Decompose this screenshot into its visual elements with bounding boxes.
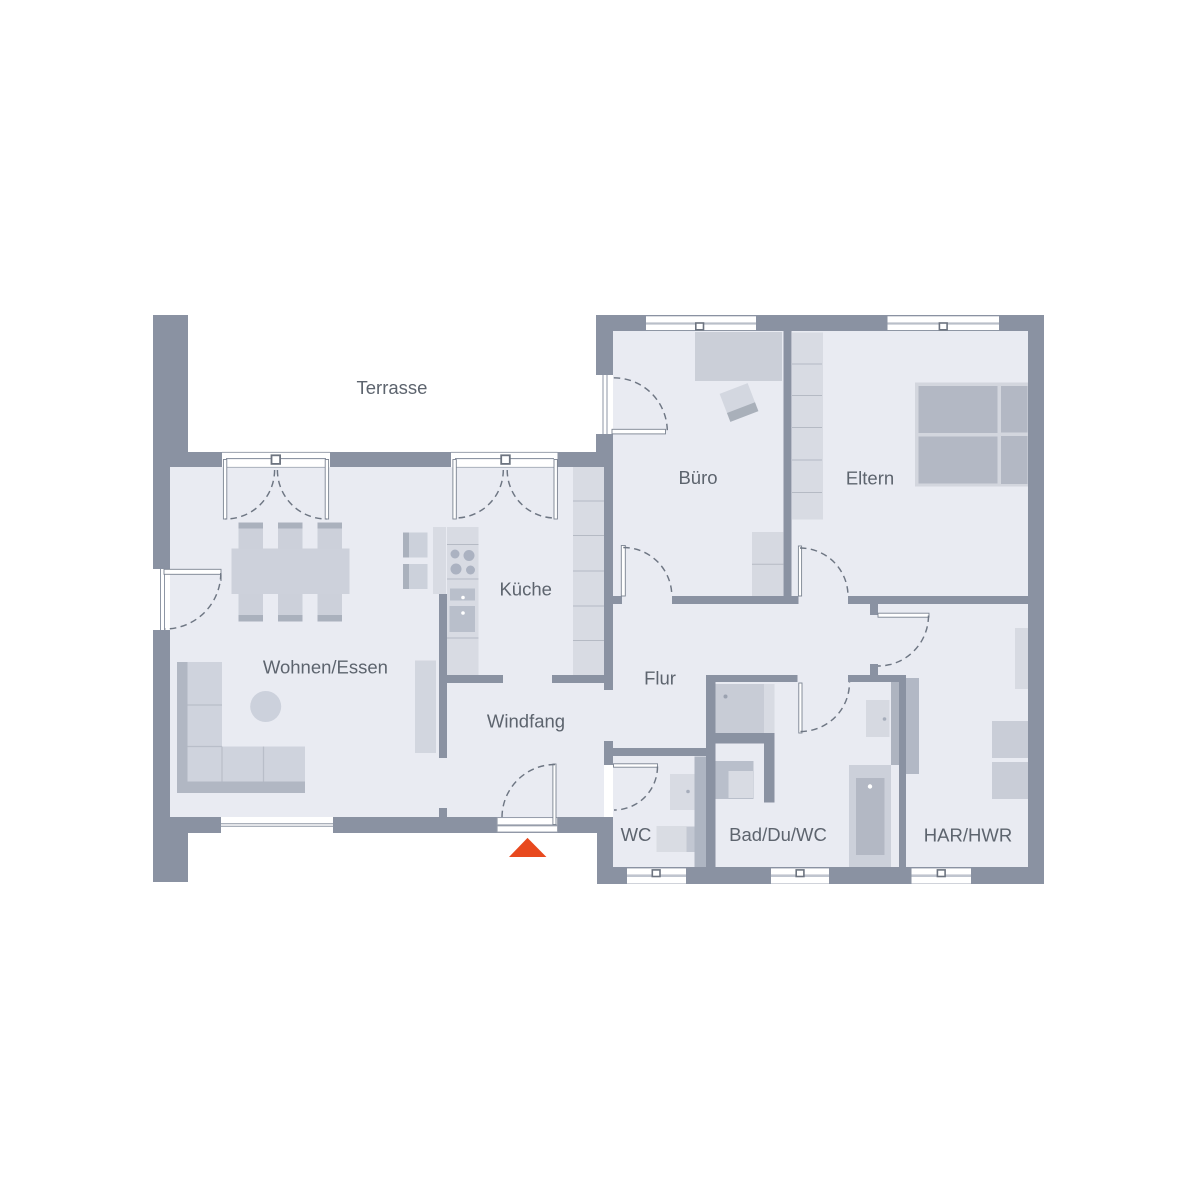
- svg-text:Küche: Küche: [499, 579, 551, 600]
- svg-text:HAR/HWR: HAR/HWR: [924, 825, 1012, 846]
- svg-text:WC: WC: [621, 824, 652, 845]
- svg-text:Eltern: Eltern: [846, 468, 894, 489]
- svg-text:Flur: Flur: [644, 668, 676, 689]
- svg-text:Büro: Büro: [678, 467, 717, 488]
- svg-text:Bad/Du/WC: Bad/Du/WC: [729, 824, 827, 845]
- svg-text:Wohnen/Essen: Wohnen/Essen: [263, 657, 388, 678]
- svg-text:Windfang: Windfang: [487, 711, 565, 732]
- svg-text:Terrasse: Terrasse: [357, 377, 428, 398]
